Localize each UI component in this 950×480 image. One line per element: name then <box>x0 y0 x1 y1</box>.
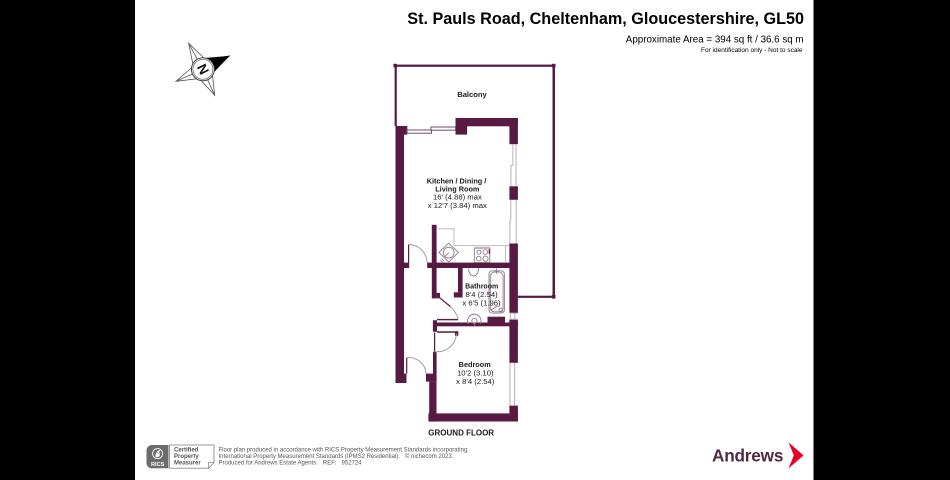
svg-text:x 12'7 (3.84) max: x 12'7 (3.84) max <box>428 201 487 210</box>
svg-text:Certified: Certified <box>174 448 199 454</box>
svg-text:Andrews: Andrews <box>712 446 783 466</box>
svg-text:GROUND FLOOR: GROUND FLOOR <box>428 429 494 438</box>
svg-text:RICS: RICS <box>151 462 165 468</box>
svg-text:For identification only - Not: For identification only - Not to scale <box>701 47 803 54</box>
svg-text:Measurer: Measurer <box>174 460 201 466</box>
svg-text:x 8'4 (2.54): x 8'4 (2.54) <box>456 377 495 386</box>
svg-text:Floor plan produced in accorda: Floor plan produced in accordance with R… <box>219 447 468 453</box>
svg-text:St. Pauls Road, Cheltenham, Gl: St. Pauls Road, Cheltenham, Gloucestersh… <box>407 10 804 28</box>
svg-text:Produced for Andrews Estate Ag: Produced for Andrews Estate Agents. REF:… <box>219 461 363 467</box>
svg-text:Property: Property <box>174 454 199 460</box>
svg-text:Balcony: Balcony <box>457 90 487 99</box>
svg-text:International Property Measure: International Property Measurement Stand… <box>219 453 454 460</box>
svg-text:x 6'5 (1.96): x 6'5 (1.96) <box>462 299 501 308</box>
svg-text:Approximate Area = 394 sq ft /: Approximate Area = 394 sq ft / 36.6 sq m <box>626 35 804 46</box>
